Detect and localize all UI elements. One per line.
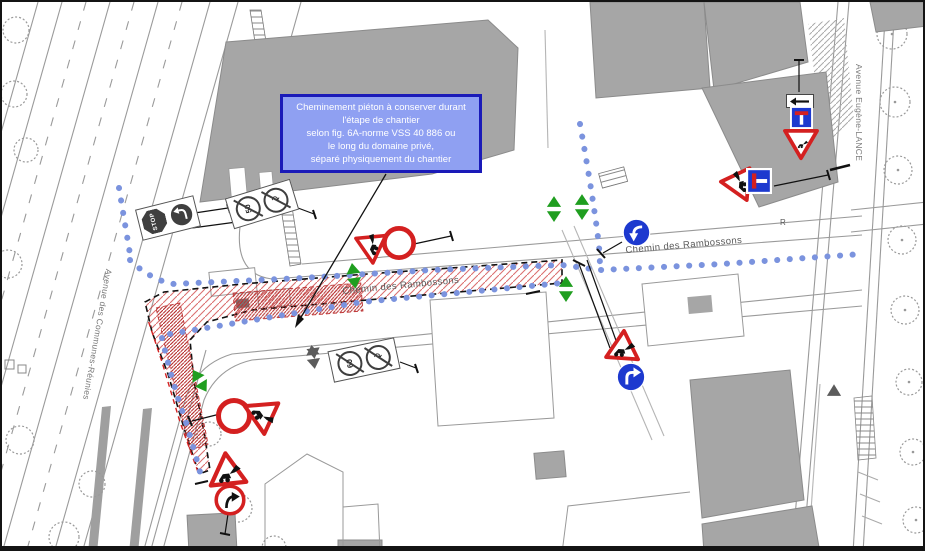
removed-speed-sign: 50 xyxy=(233,193,264,224)
crossing-marking xyxy=(599,167,628,188)
annotation-line: selon fig. 6A-norme VSS 40 886 ou xyxy=(285,127,477,140)
dead-end-sign xyxy=(746,168,772,194)
utility-box xyxy=(18,365,26,373)
removed-sign-slash xyxy=(233,199,263,217)
parking-stalls xyxy=(854,396,876,460)
outbuilding xyxy=(687,295,712,314)
roadworks-triangle-sign xyxy=(603,327,643,364)
removed-sign-slash xyxy=(335,353,364,373)
removed-restriction-sign: ↷ xyxy=(363,342,393,372)
removed-restriction-sign: ↷ xyxy=(260,184,291,215)
yield-triangle-sign xyxy=(782,128,820,162)
annotation-box: Cheminement piéton à conserver durant l'… xyxy=(280,94,482,173)
annotation-line: Cheminement piéton à conserver durant xyxy=(285,101,477,114)
removed-sign-slash xyxy=(364,347,393,367)
mandatory-direction-sign xyxy=(616,362,646,392)
removed-sign-slash xyxy=(261,191,291,209)
parking-marks xyxy=(858,472,882,524)
existing-turn-sign xyxy=(167,200,196,229)
site-plan: Cheminement piéton à conserver durant l'… xyxy=(0,0,925,551)
annotation-line: le long du domaine privé, xyxy=(285,140,477,153)
tree-centers xyxy=(891,33,918,522)
removed-speed-sign: 60 xyxy=(335,348,365,378)
prohibited-turn-sign xyxy=(214,484,246,516)
dead-end-sign xyxy=(790,106,813,129)
left-arrow-icon xyxy=(789,97,811,106)
no-entry-sign xyxy=(382,226,416,260)
building-footprint-lines xyxy=(265,454,690,551)
street-label-eugene-lance: Avenue Eugène-LANCE xyxy=(854,64,864,161)
annotation-line: l'étape de chantier xyxy=(285,114,477,127)
map-linework xyxy=(2,2,925,551)
stop-octagon-sign: STOP xyxy=(140,207,169,236)
mandatory-direction-sign xyxy=(622,218,651,247)
annotation-line: séparé physiquement du chantier xyxy=(285,153,477,166)
platform-strip xyxy=(88,406,111,551)
curb-mark-label: R xyxy=(780,218,786,227)
platform-strip xyxy=(129,408,152,551)
